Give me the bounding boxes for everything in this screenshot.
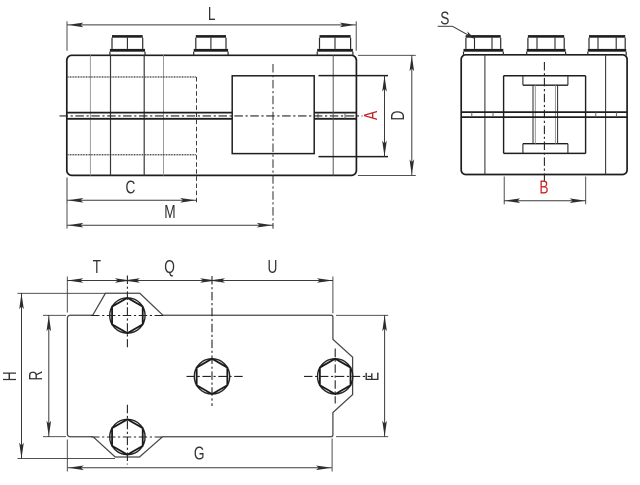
svg-text:L: L [208, 4, 216, 24]
svg-text:R: R [26, 371, 46, 381]
svg-text:B: B [539, 177, 548, 197]
svg-text:H: H [0, 371, 20, 381]
svg-text:S: S [440, 8, 449, 28]
svg-text:U: U [267, 257, 277, 277]
svg-text:A: A [361, 111, 381, 120]
svg-text:D: D [388, 111, 408, 121]
svg-text:T: T [93, 257, 101, 277]
svg-text:G: G [194, 443, 205, 463]
svg-text:Q: Q [164, 257, 175, 277]
svg-text:C: C [126, 177, 136, 197]
svg-text:E: E [363, 372, 383, 381]
svg-text:M: M [164, 202, 175, 222]
